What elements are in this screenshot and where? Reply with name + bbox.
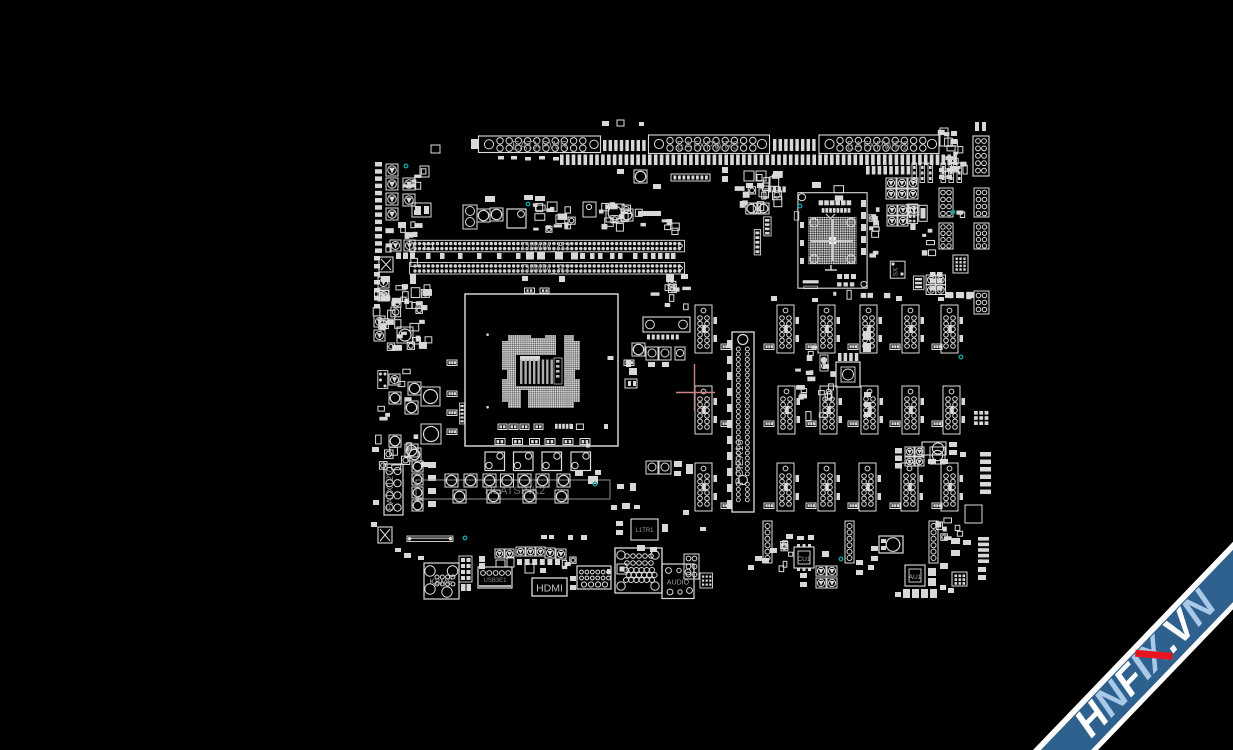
svg-text:EATXPWR3: EATXPWR3 <box>677 141 739 153</box>
svg-text:EATXPWR2: EATXPWR2 <box>847 141 909 153</box>
svg-text:PCIEX16: PCIEX16 <box>734 439 746 484</box>
svg-text:HDMI: HDMI <box>536 583 563 595</box>
svg-text:L1TR1: L1TR1 <box>635 528 654 534</box>
svg-text:KBMS: KBMS <box>430 578 453 587</box>
svg-text:SX: SX <box>893 267 900 276</box>
svg-text:DIMM_A2: DIMM_A2 <box>522 263 571 275</box>
svg-text:DIMM_B2: DIMM_B2 <box>522 241 571 253</box>
svg-text:USB3E1: USB3E1 <box>483 578 507 584</box>
svg-text:AU1: AU1 <box>909 574 922 581</box>
svg-text:EATXPWR: EATXPWR <box>512 141 568 153</box>
svg-text:EATX12V: EATX12V <box>385 469 396 511</box>
svg-text:AUDIO: AUDIO <box>667 580 690 587</box>
svg-text:CU1: CU1 <box>797 556 810 563</box>
